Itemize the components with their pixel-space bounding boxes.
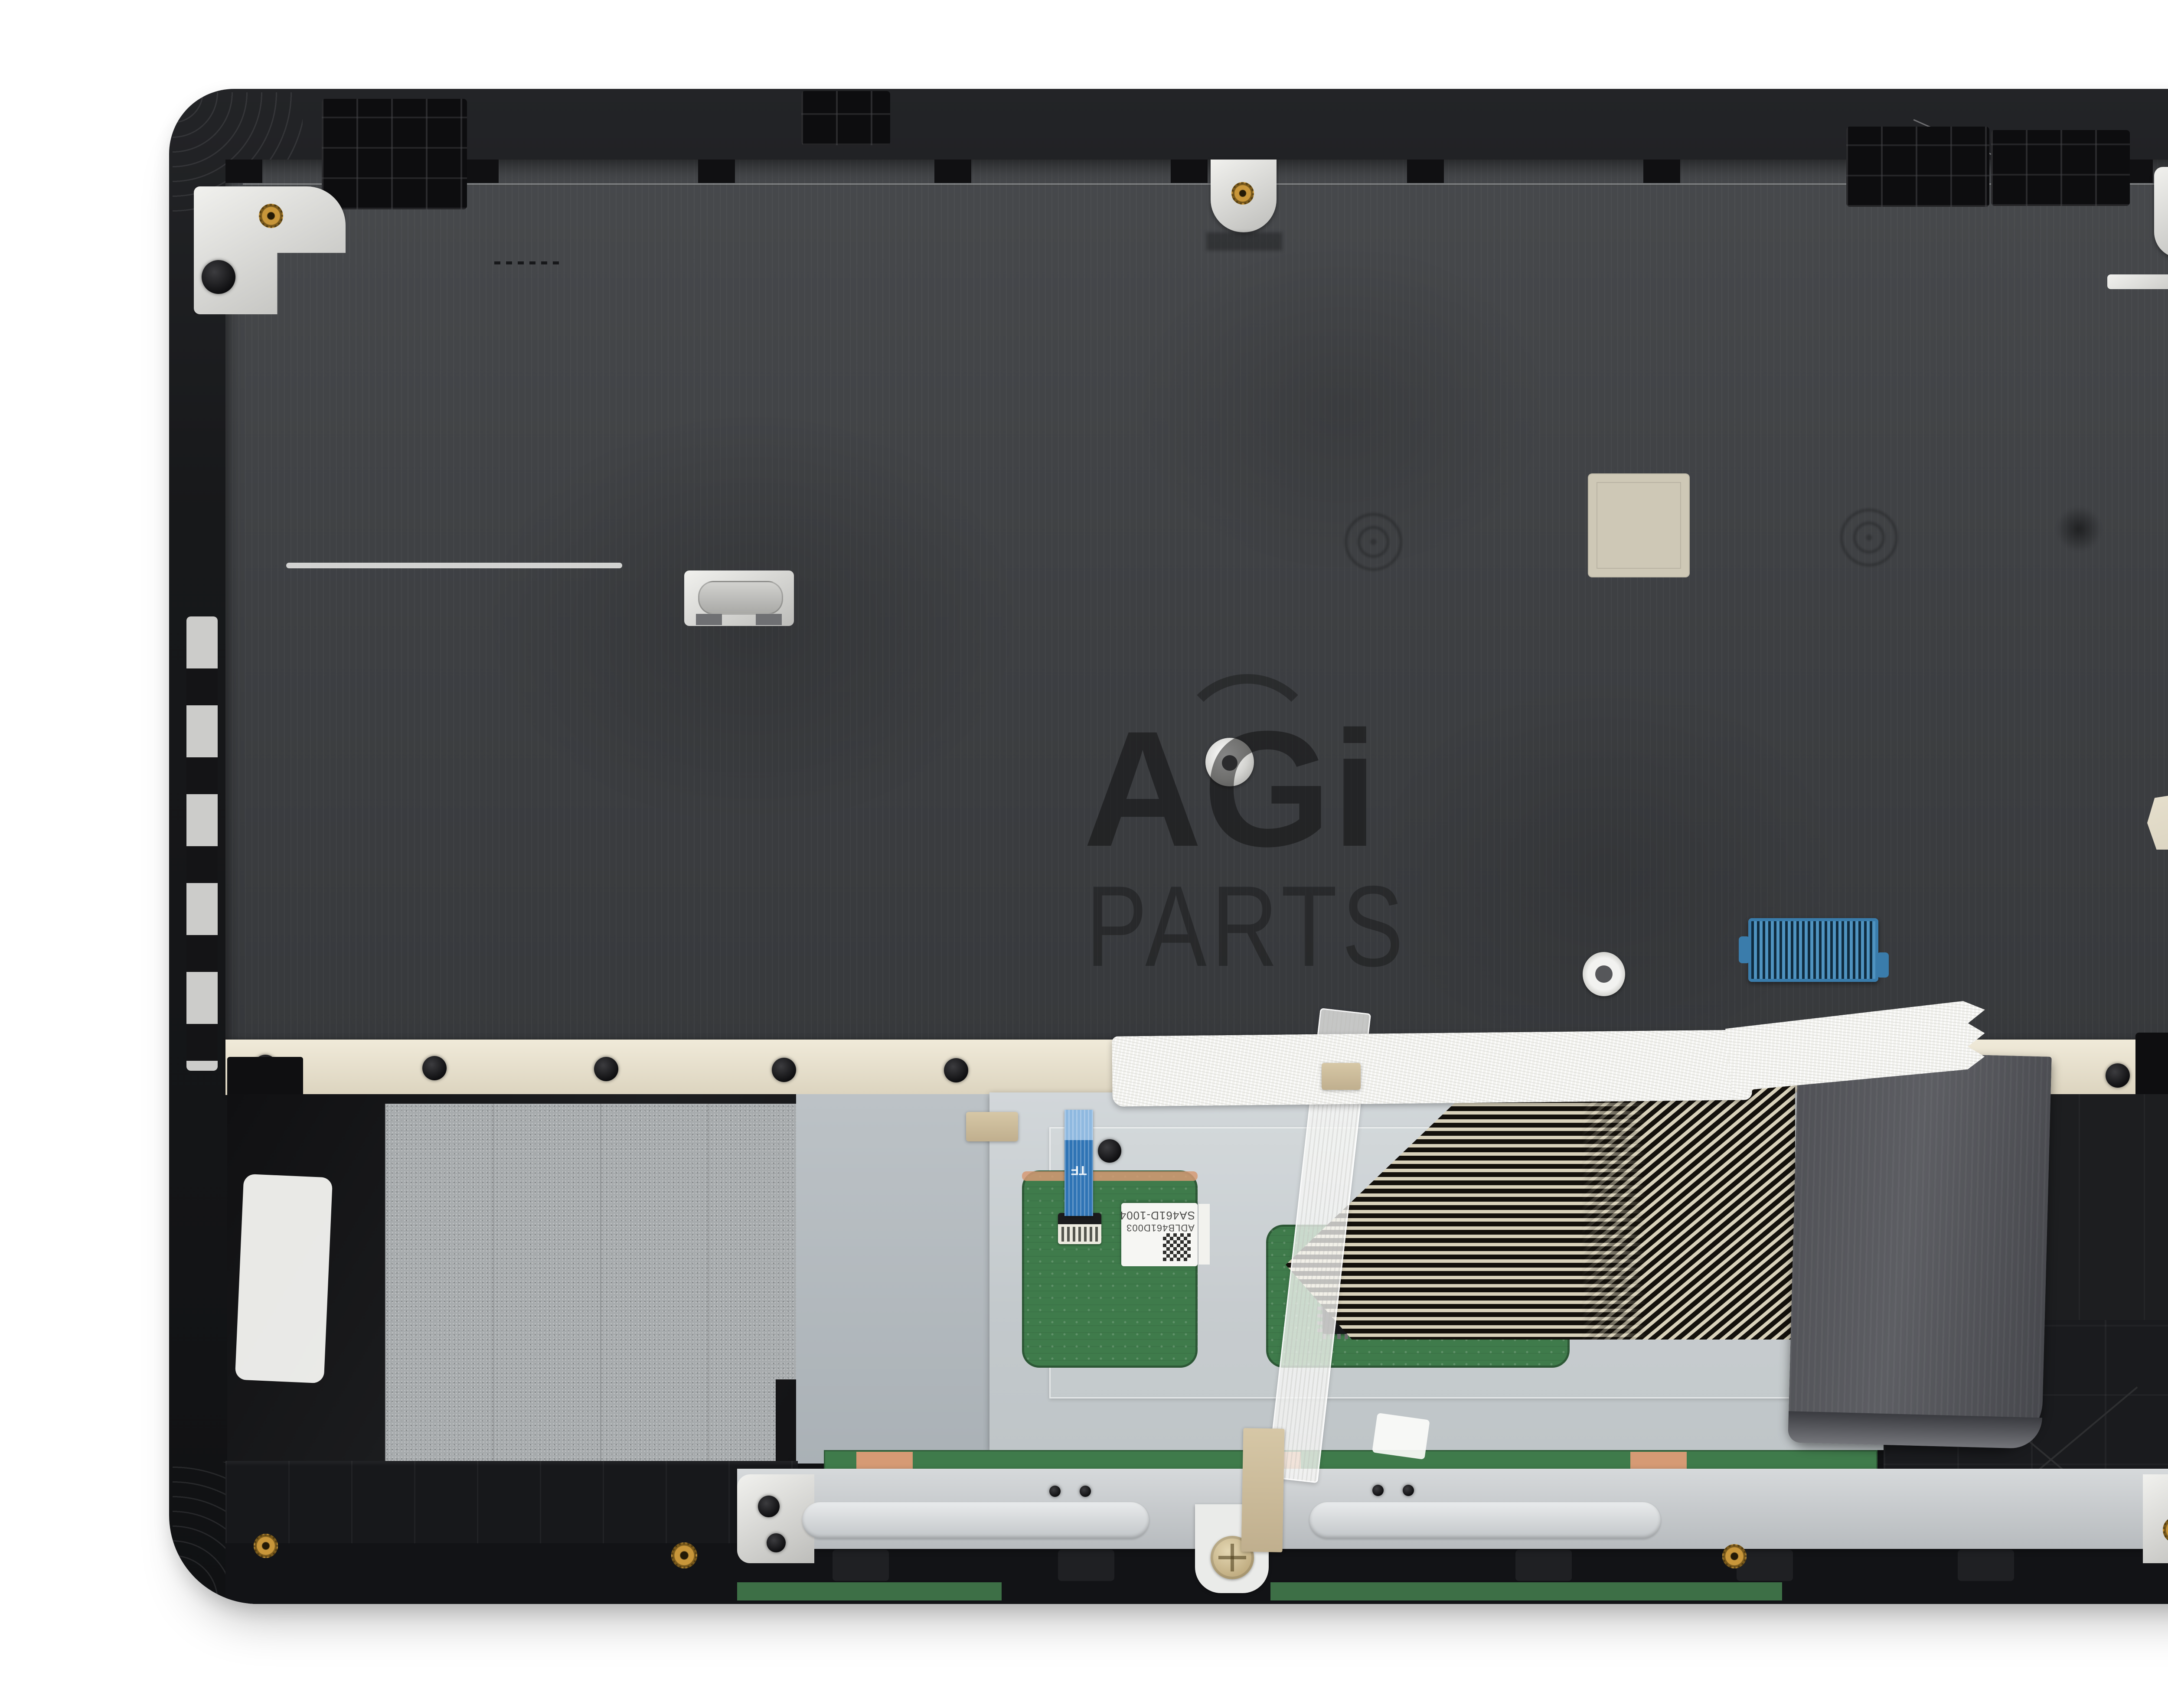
clip-tab <box>1058 1550 1114 1581</box>
thermal-pad-inner <box>1597 482 1681 569</box>
white-grommet <box>1583 952 1625 996</box>
hinge-module-right-a <box>1846 127 1989 207</box>
sticker-qr-code <box>1161 1232 1192 1263</box>
plate-dash-marks <box>494 261 559 264</box>
latch-emboss <box>698 581 783 615</box>
latch-foot-left <box>696 614 722 625</box>
touchpad-screw <box>1098 1139 1121 1163</box>
tan-tape-small-mid <box>1322 1063 1361 1090</box>
copper-strip <box>1022 1171 1198 1181</box>
bracket-pinhole <box>1403 1485 1414 1496</box>
bracket-pinhole <box>1049 1486 1061 1497</box>
watermark-word: PARTS <box>1086 869 1408 984</box>
grommet-hole <box>1595 965 1613 983</box>
pcb-edge-segment <box>1270 1582 1782 1600</box>
brass-standoff <box>671 1542 697 1568</box>
white-sticker-strip <box>235 1174 333 1383</box>
brass-insert <box>1231 182 1254 205</box>
left-edge-bracket-strip <box>186 616 218 1071</box>
sticker-sliver <box>1198 1204 1210 1265</box>
watermark-brand: AGi <box>1083 707 1379 871</box>
bracket-hole <box>758 1496 780 1517</box>
tab-notch-shadow <box>1206 232 1282 251</box>
blue-connector <box>1748 918 1878 982</box>
tan-tape-left <box>966 1112 1018 1141</box>
sticker-line1: SA461D-1004 <box>1126 1208 1195 1222</box>
strip-screw <box>422 1056 447 1080</box>
blue-connector-nub-left <box>1739 936 1750 963</box>
bracket-emboss-right <box>1309 1502 1661 1539</box>
strip-screw <box>772 1058 796 1082</box>
clip-tab <box>833 1550 889 1581</box>
clip-tab <box>1958 1550 2014 1581</box>
strip-screw <box>2106 1063 2130 1088</box>
bracket-hole <box>767 1533 786 1552</box>
pull-tape-tip <box>1372 1413 1430 1460</box>
bracket-pinhole <box>1080 1486 1091 1497</box>
strip-left-block <box>227 1057 303 1098</box>
strip-screw <box>944 1058 968 1082</box>
touchpad-sticker: ADLB461D003 SA461D-1004 <box>1121 1203 1198 1266</box>
product-photo-canvas: TF ADLB461D003 SA461D-1004 <box>0 0 2168 1708</box>
pcb-window-left <box>1022 1170 1198 1368</box>
watermark-word-text: PARTS <box>1086 862 1408 991</box>
bracket-foot-right <box>2107 274 2168 289</box>
top-notch-module <box>801 91 890 145</box>
dark-ribbon-cable <box>1788 1050 2051 1449</box>
thermal-pad-square <box>1588 473 1690 577</box>
ribbon-fold-highlight <box>1788 1411 2042 1449</box>
pcb-edge-segment <box>737 1582 1002 1600</box>
ffc-connector <box>1058 1213 1101 1244</box>
latch-foot-right <box>756 614 782 625</box>
latch-plate <box>684 570 794 626</box>
hinge-module-left <box>322 99 467 209</box>
fabric-tape-band <box>1112 1030 1752 1106</box>
strip-screw <box>594 1057 618 1081</box>
brass-insert <box>259 204 283 228</box>
sticker-text: ADLB461D003 SA461D-1004 <box>1126 1208 1195 1233</box>
brass-standoff <box>254 1534 278 1558</box>
swirl-mark-right <box>1833 503 1905 572</box>
tan-tape-vertical <box>1241 1428 1285 1552</box>
felt-pad <box>385 1104 814 1462</box>
screw-slot-v <box>1231 1544 1234 1571</box>
bracket-cap-right <box>2143 1474 2168 1563</box>
palmrest-gray-strip <box>796 1094 990 1464</box>
brass-standoff <box>1722 1544 1747 1568</box>
cable-marking-text: TF <box>1071 1163 1087 1177</box>
sticker-line2: ADLB461D003 <box>1126 1222 1195 1233</box>
black-screw <box>202 260 235 294</box>
dark-blob <box>2056 506 2102 552</box>
plate-reflection-line <box>286 563 622 568</box>
cable-marking-label: TF <box>1066 1160 1092 1180</box>
bracket-emboss-left <box>802 1502 1149 1539</box>
copper-pad <box>1630 1452 1687 1471</box>
blue-connector-nub-right <box>1877 952 1889 978</box>
ffc-connector-pins <box>1061 1227 1098 1242</box>
copper-pad <box>856 1452 913 1471</box>
swirl-mark-left <box>1338 507 1409 577</box>
hinge-module-right-b <box>1991 130 2130 206</box>
bracket-pinhole <box>1372 1485 1384 1496</box>
clip-tab <box>1515 1550 1572 1581</box>
